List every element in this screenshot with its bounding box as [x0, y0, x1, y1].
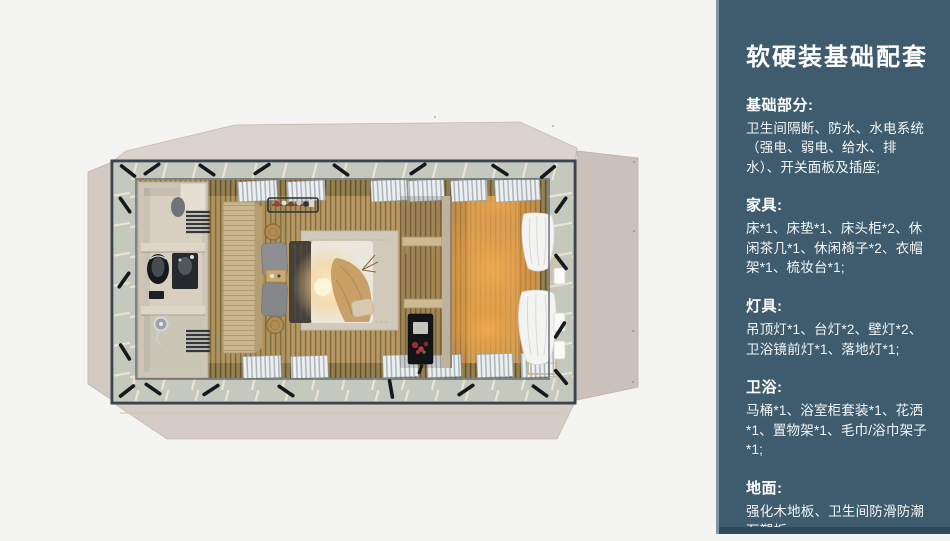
section-heading-lighting: 灯具:: [746, 295, 928, 316]
laundry-basket: [171, 197, 185, 217]
spec-section-lighting: 灯具: 吊顶灯*1、台灯*2、壁灯*2、卫浴镜前灯*1、落地灯*1;: [746, 295, 928, 359]
spec-section-furniture: 家具: 床*1、床垫*1、床头柜*2、休闲茶几*1、休闲椅子*2、衣帽架*1、梳…: [746, 194, 928, 278]
section-body-sanitary: 马桶*1、浴室柜套装*1、花洒*1、置物架*1、毛巾/浴巾架子*1;: [746, 401, 928, 460]
wall-light-3: [554, 341, 565, 359]
knit-cushion: [351, 298, 374, 317]
bathroom: [138, 182, 210, 378]
wall-light-1: [554, 268, 565, 284]
section-body-furniture: 床*1、床垫*1、床头柜*2、休闲茶几*1、休闲椅子*2、衣帽架*1、梳妆台*1…: [746, 219, 928, 278]
section-heading-furniture: 家具:: [746, 194, 928, 215]
spec-section-foundation: 基础部分: 卫生间隔断、防水、水电系统（强电、弱电、给水、排水）、开关面板及插座…: [746, 94, 928, 178]
section-heading-foundation: 基础部分:: [746, 94, 928, 115]
page-title: 软硬装基础配套: [746, 44, 928, 72]
spec-sidebar-content: 软硬装基础配套 基础部分: 卫生间隔断、防水、水电系统（强电、弱电、给水、排水）…: [719, 0, 950, 541]
bathroom-partition-shelf2: [141, 306, 205, 315]
bathroom-partition-shelf: [141, 243, 205, 252]
black-heater-unit: [408, 314, 433, 364]
wardrobe: [223, 202, 262, 353]
coat-rack: [268, 198, 318, 212]
exterior-panel-bottom: [112, 402, 575, 439]
exterior-panel-top: [112, 122, 577, 162]
sidebar-footer-strip: [719, 527, 950, 534]
wall-shelf-bottom: [404, 299, 448, 308]
spec-sidebar: 软硬装基础配套 基础部分: 卫生间隔断、防水、水电系统（强电、弱电、给水、排水）…: [716, 0, 950, 534]
section-heading-sanitary: 卫浴:: [746, 376, 928, 397]
rattan-pouf-bottom: [267, 317, 284, 334]
section-heading-flooring: 地面:: [746, 477, 928, 498]
spec-section-sanitary: 卫浴: 马桶*1、浴室柜套装*1、花洒*1、置物架*1、毛巾/浴巾架子*1;: [746, 376, 928, 460]
shelf-nook: [400, 196, 452, 374]
section-body-foundation: 卫生间隔断、防水、水电系统（强电、弱电、给水、排水）、开关面板及插座;: [746, 119, 928, 178]
exterior-panel-right: [577, 151, 638, 400]
floorplan-render: [0, 0, 716, 534]
rattan-pouf-top: [265, 224, 281, 240]
wall-shelf-top: [402, 237, 442, 246]
pillow-bottom: [261, 282, 288, 316]
bed-tray: [266, 270, 286, 282]
section-body-lighting: 吊顶灯*1、台灯*2、壁灯*2、卫浴镜前灯*1、落地灯*1;: [746, 320, 928, 359]
section-body-flooring: 强化木地板、卫生间防滑防潮石塑板;: [746, 502, 928, 541]
page: 软硬装基础配套 基础部分: 卫生间隔断、防水、水电系统（强电、弱电、给水、排水）…: [0, 0, 950, 534]
exterior-panel-left: [88, 162, 112, 400]
